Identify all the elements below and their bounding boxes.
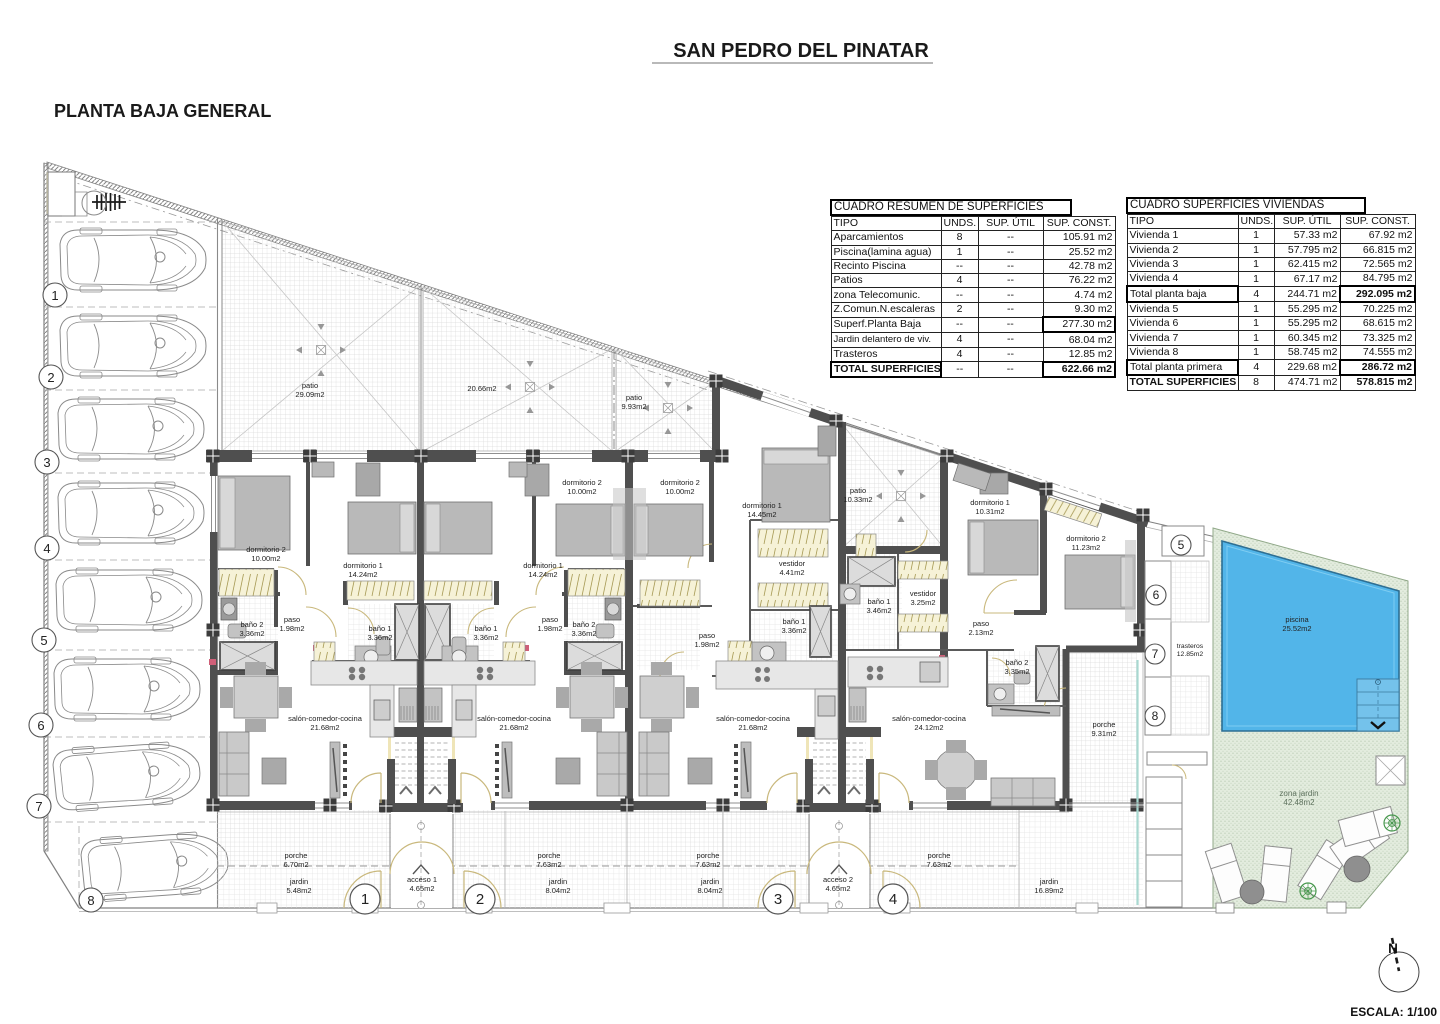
svg-text:3.36m2: 3.36m2 xyxy=(781,626,806,635)
svg-text:jardin: jardin xyxy=(548,877,567,886)
svg-text:1.98m2: 1.98m2 xyxy=(279,624,304,633)
svg-text:vestidor: vestidor xyxy=(779,559,806,568)
svg-text:25.52m2: 25.52m2 xyxy=(1282,624,1311,633)
svg-text:baño 2: baño 2 xyxy=(241,620,264,629)
svg-text:porche: porche xyxy=(928,851,951,860)
svg-text:5: 5 xyxy=(1178,538,1185,552)
svg-text:16.89m2: 16.89m2 xyxy=(1034,886,1063,895)
svg-text:salón-comedor-cocina: salón-comedor-cocina xyxy=(716,714,791,723)
svg-text:3.36m2: 3.36m2 xyxy=(473,633,498,642)
svg-text:5: 5 xyxy=(40,633,47,648)
svg-text:porche: porche xyxy=(1093,720,1116,729)
svg-text:patio: patio xyxy=(850,486,866,495)
svg-text:5.48m2: 5.48m2 xyxy=(286,886,311,895)
svg-text:24.12m2: 24.12m2 xyxy=(914,723,943,732)
svg-text:ESCALA: 1/100: ESCALA: 1/100 xyxy=(1350,1005,1437,1019)
svg-text:2: 2 xyxy=(47,370,54,385)
svg-text:salón-comedor-cocina: salón-comedor-cocina xyxy=(288,714,363,723)
svg-text:1: 1 xyxy=(361,891,369,908)
svg-text:2: 2 xyxy=(476,891,484,908)
svg-text:jardin: jardin xyxy=(1039,877,1058,886)
svg-text:paso: paso xyxy=(973,619,989,628)
svg-text:7: 7 xyxy=(1152,647,1159,661)
svg-text:9.93m2: 9.93m2 xyxy=(621,402,646,411)
svg-text:porche: porche xyxy=(697,851,720,860)
svg-text:6: 6 xyxy=(37,718,44,733)
svg-text:dormitorio 1: dormitorio 1 xyxy=(523,561,563,570)
svg-text:9.31m2: 9.31m2 xyxy=(1091,729,1116,738)
svg-text:2.13m2: 2.13m2 xyxy=(968,628,993,637)
svg-text:baño 1: baño 1 xyxy=(369,624,392,633)
svg-text:10.00m2: 10.00m2 xyxy=(251,554,280,563)
svg-text:8.04m2: 8.04m2 xyxy=(697,886,722,895)
svg-text:7.63m2: 7.63m2 xyxy=(536,860,561,869)
svg-text:porche: porche xyxy=(538,851,561,860)
svg-text:jardin: jardin xyxy=(289,877,308,886)
svg-text:10.00m2: 10.00m2 xyxy=(665,487,694,496)
svg-text:dormitorio 2: dormitorio 2 xyxy=(660,478,700,487)
svg-text:baño 1: baño 1 xyxy=(475,624,498,633)
svg-text:29.09m2: 29.09m2 xyxy=(295,390,324,399)
svg-text:4.65m2: 4.65m2 xyxy=(825,884,850,893)
svg-text:3.25m2: 3.25m2 xyxy=(910,598,935,607)
svg-text:7.63m2: 7.63m2 xyxy=(926,860,951,869)
svg-text:paso: paso xyxy=(542,615,558,624)
svg-text:3.36m2: 3.36m2 xyxy=(367,633,392,642)
svg-text:8.04m2: 8.04m2 xyxy=(545,886,570,895)
svg-text:6.70m2: 6.70m2 xyxy=(283,860,308,869)
svg-text:patio: patio xyxy=(626,393,642,402)
svg-text:42.48m2: 42.48m2 xyxy=(1283,798,1315,807)
svg-text:3.36m2: 3.36m2 xyxy=(239,629,264,638)
svg-text:1: 1 xyxy=(51,288,58,303)
svg-text:salón-comedor-cocina: salón-comedor-cocina xyxy=(477,714,552,723)
svg-text:baño 1: baño 1 xyxy=(868,597,891,606)
svg-text:20.66m2: 20.66m2 xyxy=(467,384,496,393)
svg-text:6: 6 xyxy=(1153,588,1160,602)
svg-text:10.31m2: 10.31m2 xyxy=(975,507,1004,516)
svg-text:11.23m2: 11.23m2 xyxy=(1072,543,1101,552)
svg-text:jardin: jardin xyxy=(700,877,719,886)
svg-text:14.24m2: 14.24m2 xyxy=(528,570,557,579)
svg-text:3: 3 xyxy=(43,455,50,470)
svg-text:12.85m2: 12.85m2 xyxy=(1177,651,1204,658)
svg-text:N: N xyxy=(1388,941,1398,956)
svg-text:1.98m2: 1.98m2 xyxy=(694,640,719,649)
svg-text:dormitorio 1: dormitorio 1 xyxy=(343,561,383,570)
svg-text:zona jardin: zona jardin xyxy=(1279,789,1318,798)
svg-text:10.00m2: 10.00m2 xyxy=(567,487,596,496)
svg-text:10.33m2: 10.33m2 xyxy=(843,495,872,504)
svg-text:baño 1: baño 1 xyxy=(783,617,806,626)
svg-text:14.45m2: 14.45m2 xyxy=(747,510,776,519)
svg-text:21.68m2: 21.68m2 xyxy=(310,723,339,732)
svg-text:paso: paso xyxy=(699,631,715,640)
svg-text:porche: porche xyxy=(285,851,308,860)
svg-text:salón-comedor-cocina: salón-comedor-cocina xyxy=(892,714,967,723)
svg-text:baño 2: baño 2 xyxy=(573,620,596,629)
svg-text:3.35m2: 3.35m2 xyxy=(1004,667,1029,676)
svg-text:7: 7 xyxy=(35,799,42,814)
svg-text:4: 4 xyxy=(889,891,897,908)
svg-text:21.68m2: 21.68m2 xyxy=(738,723,767,732)
svg-text:4.65m2: 4.65m2 xyxy=(409,884,434,893)
svg-text:dormitorio 2: dormitorio 2 xyxy=(1066,534,1106,543)
svg-text:trasteros: trasteros xyxy=(1177,643,1204,650)
svg-text:7.63m2: 7.63m2 xyxy=(695,860,720,869)
svg-text:21.68m2: 21.68m2 xyxy=(499,723,528,732)
svg-text:14.24m2: 14.24m2 xyxy=(348,570,377,579)
svg-text:acceso 2: acceso 2 xyxy=(823,875,853,884)
svg-text:dormitorio 2: dormitorio 2 xyxy=(562,478,602,487)
svg-text:4: 4 xyxy=(43,541,50,556)
svg-text:1.98m2: 1.98m2 xyxy=(537,624,562,633)
svg-text:paso: paso xyxy=(284,615,300,624)
svg-text:3.46m2: 3.46m2 xyxy=(866,606,891,615)
svg-text:vestidor: vestidor xyxy=(910,589,937,598)
svg-text:8: 8 xyxy=(87,893,94,908)
svg-text:patio: patio xyxy=(302,381,318,390)
svg-text:4.41m2: 4.41m2 xyxy=(779,568,804,577)
svg-text:dormitorio 1: dormitorio 1 xyxy=(742,501,782,510)
svg-text:piscina: piscina xyxy=(1285,615,1309,624)
svg-text:dormitorio 2: dormitorio 2 xyxy=(246,545,286,554)
svg-text:8: 8 xyxy=(1152,709,1159,723)
svg-text:acceso 1: acceso 1 xyxy=(407,875,437,884)
svg-text:dormitorio 1: dormitorio 1 xyxy=(970,498,1010,507)
svg-text:3.36m2: 3.36m2 xyxy=(571,629,596,638)
svg-text:baño 2: baño 2 xyxy=(1006,658,1029,667)
svg-text:3: 3 xyxy=(774,891,782,908)
